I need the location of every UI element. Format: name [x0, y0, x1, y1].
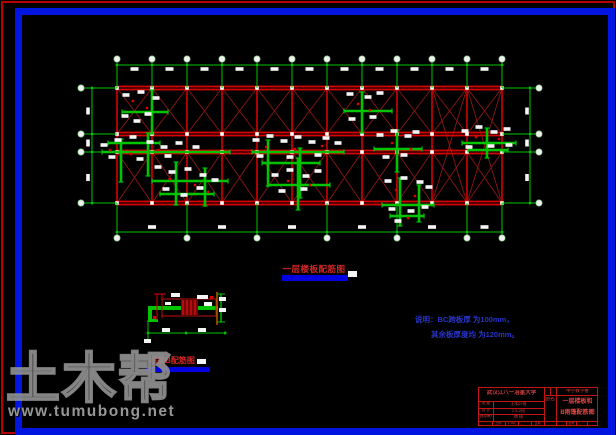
title-block-row-label: 指导教师: [480, 415, 492, 421]
note-line-2: 其余板厚度均 为120mm。: [431, 329, 519, 340]
watermark-brand: 土木帮: [6, 352, 174, 406]
title-block-school: 武汉江八一冶星大学: [480, 390, 543, 401]
plan-title-underline: [282, 275, 348, 281]
title-block-drawing-name: 一层楼板和 B雨篷配筋图: [557, 397, 598, 421]
title-block-line: [576, 421, 577, 426]
title-block-row-label: 设 计: [480, 409, 492, 414]
title-block-name-label: 图名: [545, 397, 555, 421]
watermark-url: www.tumubong.net: [8, 403, 175, 421]
title-block-footer-cell: 1:100: [506, 422, 517, 426]
title-block-project: 中学教学楼: [557, 389, 598, 395]
title-block-footer-cell: 比例: [493, 422, 504, 426]
plan-title-label: 一层楼板配筋图: [281, 263, 347, 275]
floor-plan-drawing: [78, 56, 542, 241]
title-block-row-value: 审 核: [494, 415, 543, 421]
title-block-line: [550, 388, 551, 395]
note-line-1: 说明：BC跨板厚 为100mm，: [415, 314, 519, 325]
title-block-footer-cell: 图号: [567, 422, 576, 426]
title-block-line: [518, 421, 519, 426]
title-block-row-value: 土木07班: [494, 402, 543, 408]
title-block-line: [544, 395, 597, 396]
drawing-name-line-2: B雨篷配筋图: [557, 408, 598, 419]
title-block-line: [587, 421, 588, 426]
title-block-row-label: 班 级: [480, 402, 492, 408]
cad-drawing-viewport: 一层楼板配筋图 雨篷B配筋图 说明：BC跨板厚 为100mm， 其余板厚度均 为…: [0, 0, 616, 435]
drawing-name-line-1: 一层楼板和: [557, 397, 598, 408]
title-block: 武汉江八一冶星大学 中学教学楼 图名 一层楼板和 B雨篷配筋图 班 级 土木07…: [478, 387, 598, 426]
title-block-footer-cell: 日期: [532, 422, 543, 426]
slab-thickness-note: 说明：BC跨板厚 为100mm， 其余板厚度均 为120mm。: [415, 314, 519, 340]
canopy-detail-drawing: [144, 292, 227, 343]
title-block-row-value: 2.5-2班: [494, 409, 543, 414]
